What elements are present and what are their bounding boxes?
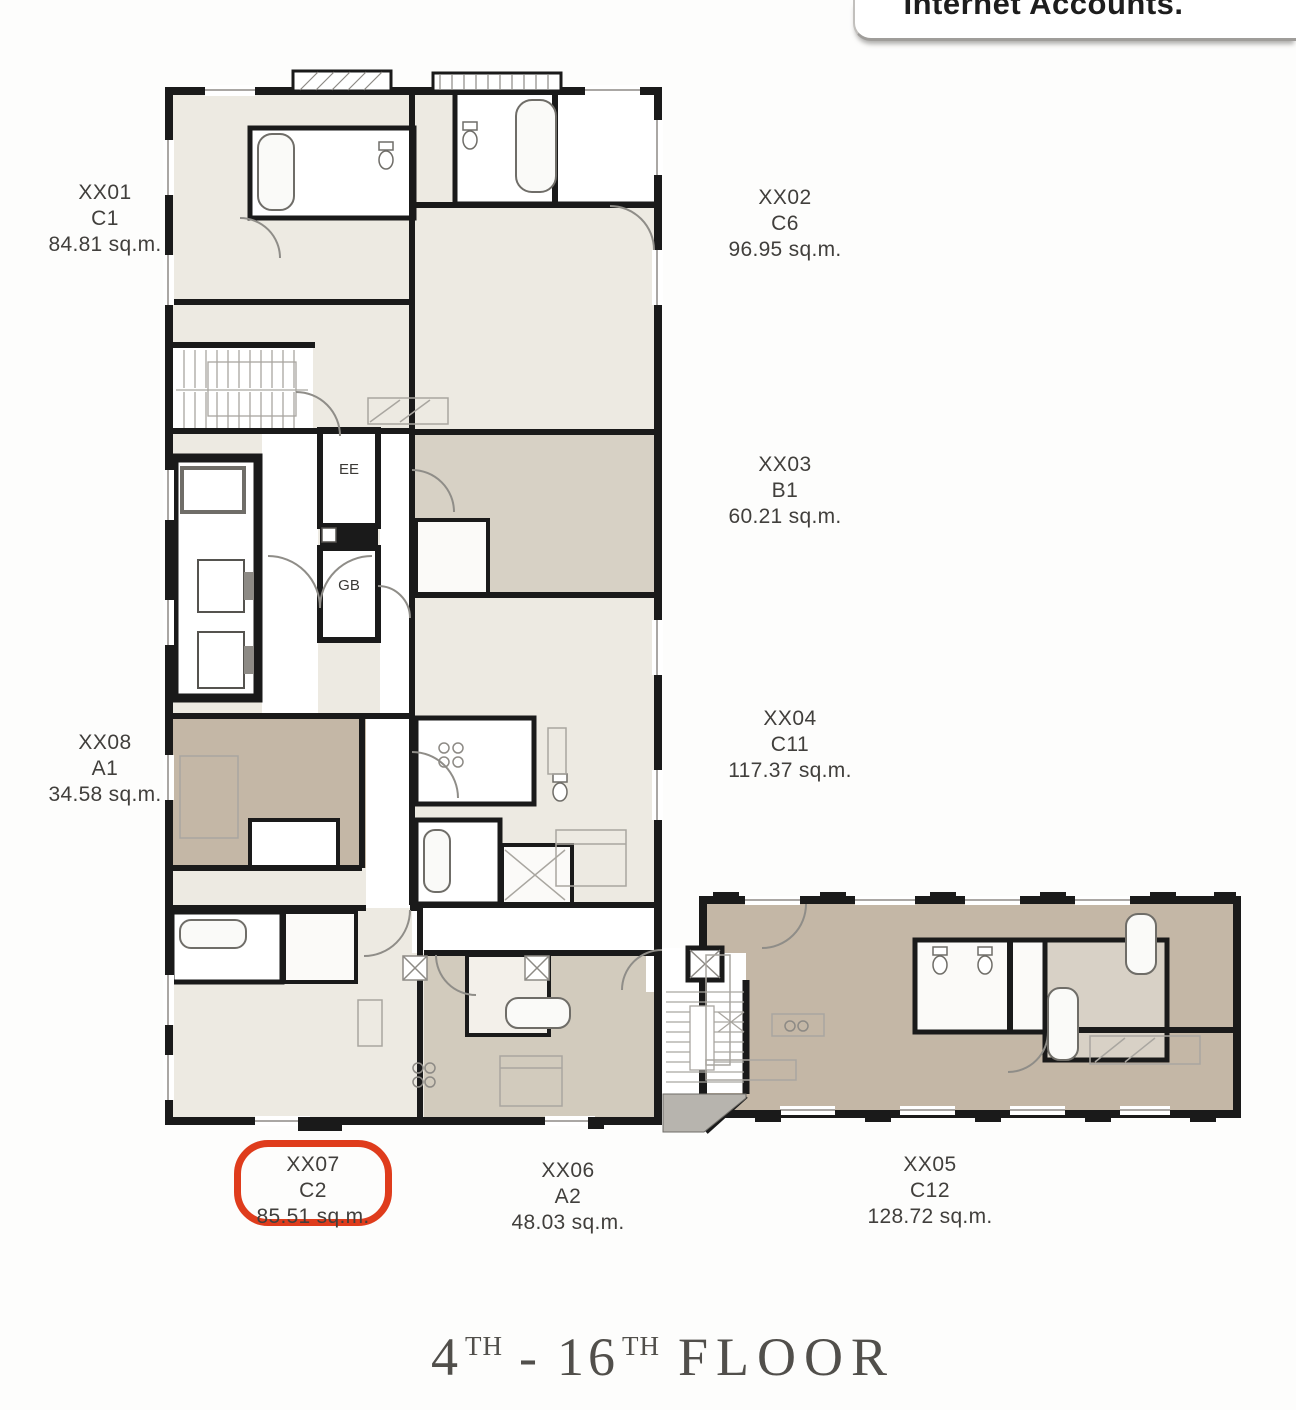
room-label-gb: GB <box>338 577 360 594</box>
floor-to-ordinal: TH <box>622 1331 660 1361</box>
unit-id: XX03 <box>700 452 870 478</box>
unit-label-xx03: XX03 B1 60.21 sq.m. <box>700 452 870 530</box>
unit-type: C2 <box>233 1178 393 1204</box>
unit-id: XX06 <box>483 1158 653 1184</box>
unit-area: 48.03 sq.m. <box>483 1210 653 1236</box>
unit-label-xx06: XX06 A2 48.03 sq.m. <box>483 1158 653 1236</box>
unit-area: 85.51 sq.m. <box>233 1204 393 1230</box>
unit-label-xx08: XX08 A1 34.58 sq.m. <box>25 730 185 808</box>
floor-word: FLOOR <box>678 1327 895 1387</box>
floor-to: 16 <box>557 1327 619 1387</box>
floor-from: 4 <box>431 1327 462 1387</box>
unit-id: XX01 <box>25 180 185 206</box>
unit-id: XX05 <box>845 1152 1015 1178</box>
floor-title: 4TH-16THFLOOR <box>0 1326 1296 1388</box>
unit-label-xx01: XX01 C1 84.81 sq.m. <box>25 180 185 258</box>
unit-id: XX08 <box>25 730 185 756</box>
page: Internet Accounts. <box>0 0 1296 1410</box>
unit-id: XX07 <box>233 1152 393 1178</box>
unit-id: XX04 <box>705 706 875 732</box>
unit-area: 96.95 sq.m. <box>700 237 870 263</box>
unit-type: C6 <box>700 211 870 237</box>
unit-area: 34.58 sq.m. <box>25 782 185 808</box>
unit-label-xx05: XX05 C12 128.72 sq.m. <box>845 1152 1015 1230</box>
room-label-ee: EE <box>339 461 359 478</box>
unit-area: 84.81 sq.m. <box>25 232 185 258</box>
unit-area: 117.37 sq.m. <box>705 758 875 784</box>
unit-label-xx04: XX04 C11 117.37 sq.m. <box>705 706 875 784</box>
unit-id: XX02 <box>700 185 870 211</box>
unit-type: C1 <box>25 206 185 232</box>
floor-from-ordinal: TH <box>465 1331 503 1361</box>
unit-area: 128.72 sq.m. <box>845 1204 1015 1230</box>
unit-area: 60.21 sq.m. <box>700 504 870 530</box>
unit-type: A1 <box>25 756 185 782</box>
unit-type: C12 <box>845 1178 1015 1204</box>
unit-type: C11 <box>705 732 875 758</box>
floor-range-separator: - <box>519 1327 541 1387</box>
unit-label-xx07: XX07 C2 85.51 sq.m. <box>233 1152 393 1230</box>
unit-label-xx02: XX02 C6 96.95 sq.m. <box>700 185 870 263</box>
unit-type: B1 <box>700 478 870 504</box>
unit-type: A2 <box>483 1184 653 1210</box>
